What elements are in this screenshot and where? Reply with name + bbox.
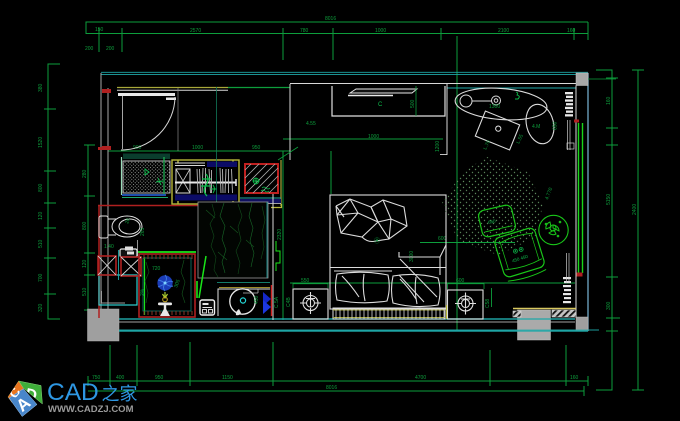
svg-text:8016: 8016 [326, 385, 337, 391]
svg-text:WWW.CADZJ.COM: WWW.CADZJ.COM [48, 404, 134, 415]
svg-text:160: 160 [567, 28, 576, 34]
svg-text:150: 150 [95, 27, 104, 33]
svg-text:200: 200 [106, 46, 115, 52]
svg-text:200: 200 [85, 46, 94, 52]
svg-text:500: 500 [410, 99, 416, 108]
svg-text:450: 450 [254, 295, 260, 304]
svg-text:280: 280 [82, 169, 88, 178]
svg-text:之家: 之家 [102, 384, 138, 404]
svg-text:4700: 4700 [415, 375, 426, 381]
svg-text:120: 120 [82, 259, 88, 268]
svg-text:8016: 8016 [325, 16, 336, 22]
svg-text:600: 600 [456, 278, 465, 284]
svg-text:120: 120 [38, 211, 44, 220]
svg-text:160: 160 [570, 375, 579, 381]
svg-text:CAD: CAD [47, 379, 99, 406]
svg-text:C.5A: C.5A [274, 296, 280, 308]
svg-text:3000: 3000 [409, 251, 415, 262]
svg-text:700: 700 [38, 273, 44, 282]
svg-text:2570: 2570 [190, 28, 201, 34]
svg-text:1300: 1300 [489, 104, 500, 110]
svg-text:380: 380 [38, 83, 44, 92]
svg-text:950: 950 [252, 145, 261, 151]
svg-text:1000: 1000 [375, 28, 386, 34]
svg-text:4.M: 4.M [532, 124, 540, 130]
svg-text:C: C [378, 102, 383, 108]
svg-text:1000: 1000 [368, 134, 379, 140]
svg-text:2%: 2% [140, 288, 146, 296]
svg-text:600: 600 [438, 236, 447, 242]
svg-text:4.55: 4.55 [306, 121, 316, 127]
svg-text:C4B: C4B [286, 297, 292, 307]
svg-text:5150: 5150 [606, 194, 612, 205]
svg-text:300: 300 [606, 301, 612, 310]
svg-text:800: 800 [82, 221, 88, 230]
svg-text:400: 400 [116, 375, 125, 381]
svg-text:950: 950 [155, 375, 164, 381]
svg-text:320: 320 [38, 303, 44, 312]
svg-text:265: 265 [140, 227, 146, 236]
svg-text:510: 510 [38, 239, 44, 248]
svg-text:510: 510 [82, 287, 88, 296]
svg-text:2100: 2100 [498, 28, 509, 34]
svg-text:650: 650 [553, 121, 559, 130]
svg-text:1520: 1520 [38, 137, 44, 148]
svg-text:720: 720 [152, 266, 161, 272]
svg-text:550: 550 [301, 278, 310, 284]
svg-text:C58: C58 [485, 299, 491, 308]
svg-text:1.40: 1.40 [104, 244, 114, 250]
svg-text:800: 800 [38, 183, 44, 192]
svg-text:780: 780 [300, 28, 309, 34]
svg-text:1000: 1000 [192, 145, 203, 151]
svg-text:160: 160 [606, 96, 612, 105]
svg-text:1200: 1200 [435, 141, 441, 152]
svg-text:1150: 1150 [222, 375, 233, 381]
svg-text:Ⓐ: Ⓐ [374, 237, 380, 245]
svg-text:2320: 2320 [277, 229, 283, 240]
svg-text:2400: 2400 [632, 204, 638, 215]
